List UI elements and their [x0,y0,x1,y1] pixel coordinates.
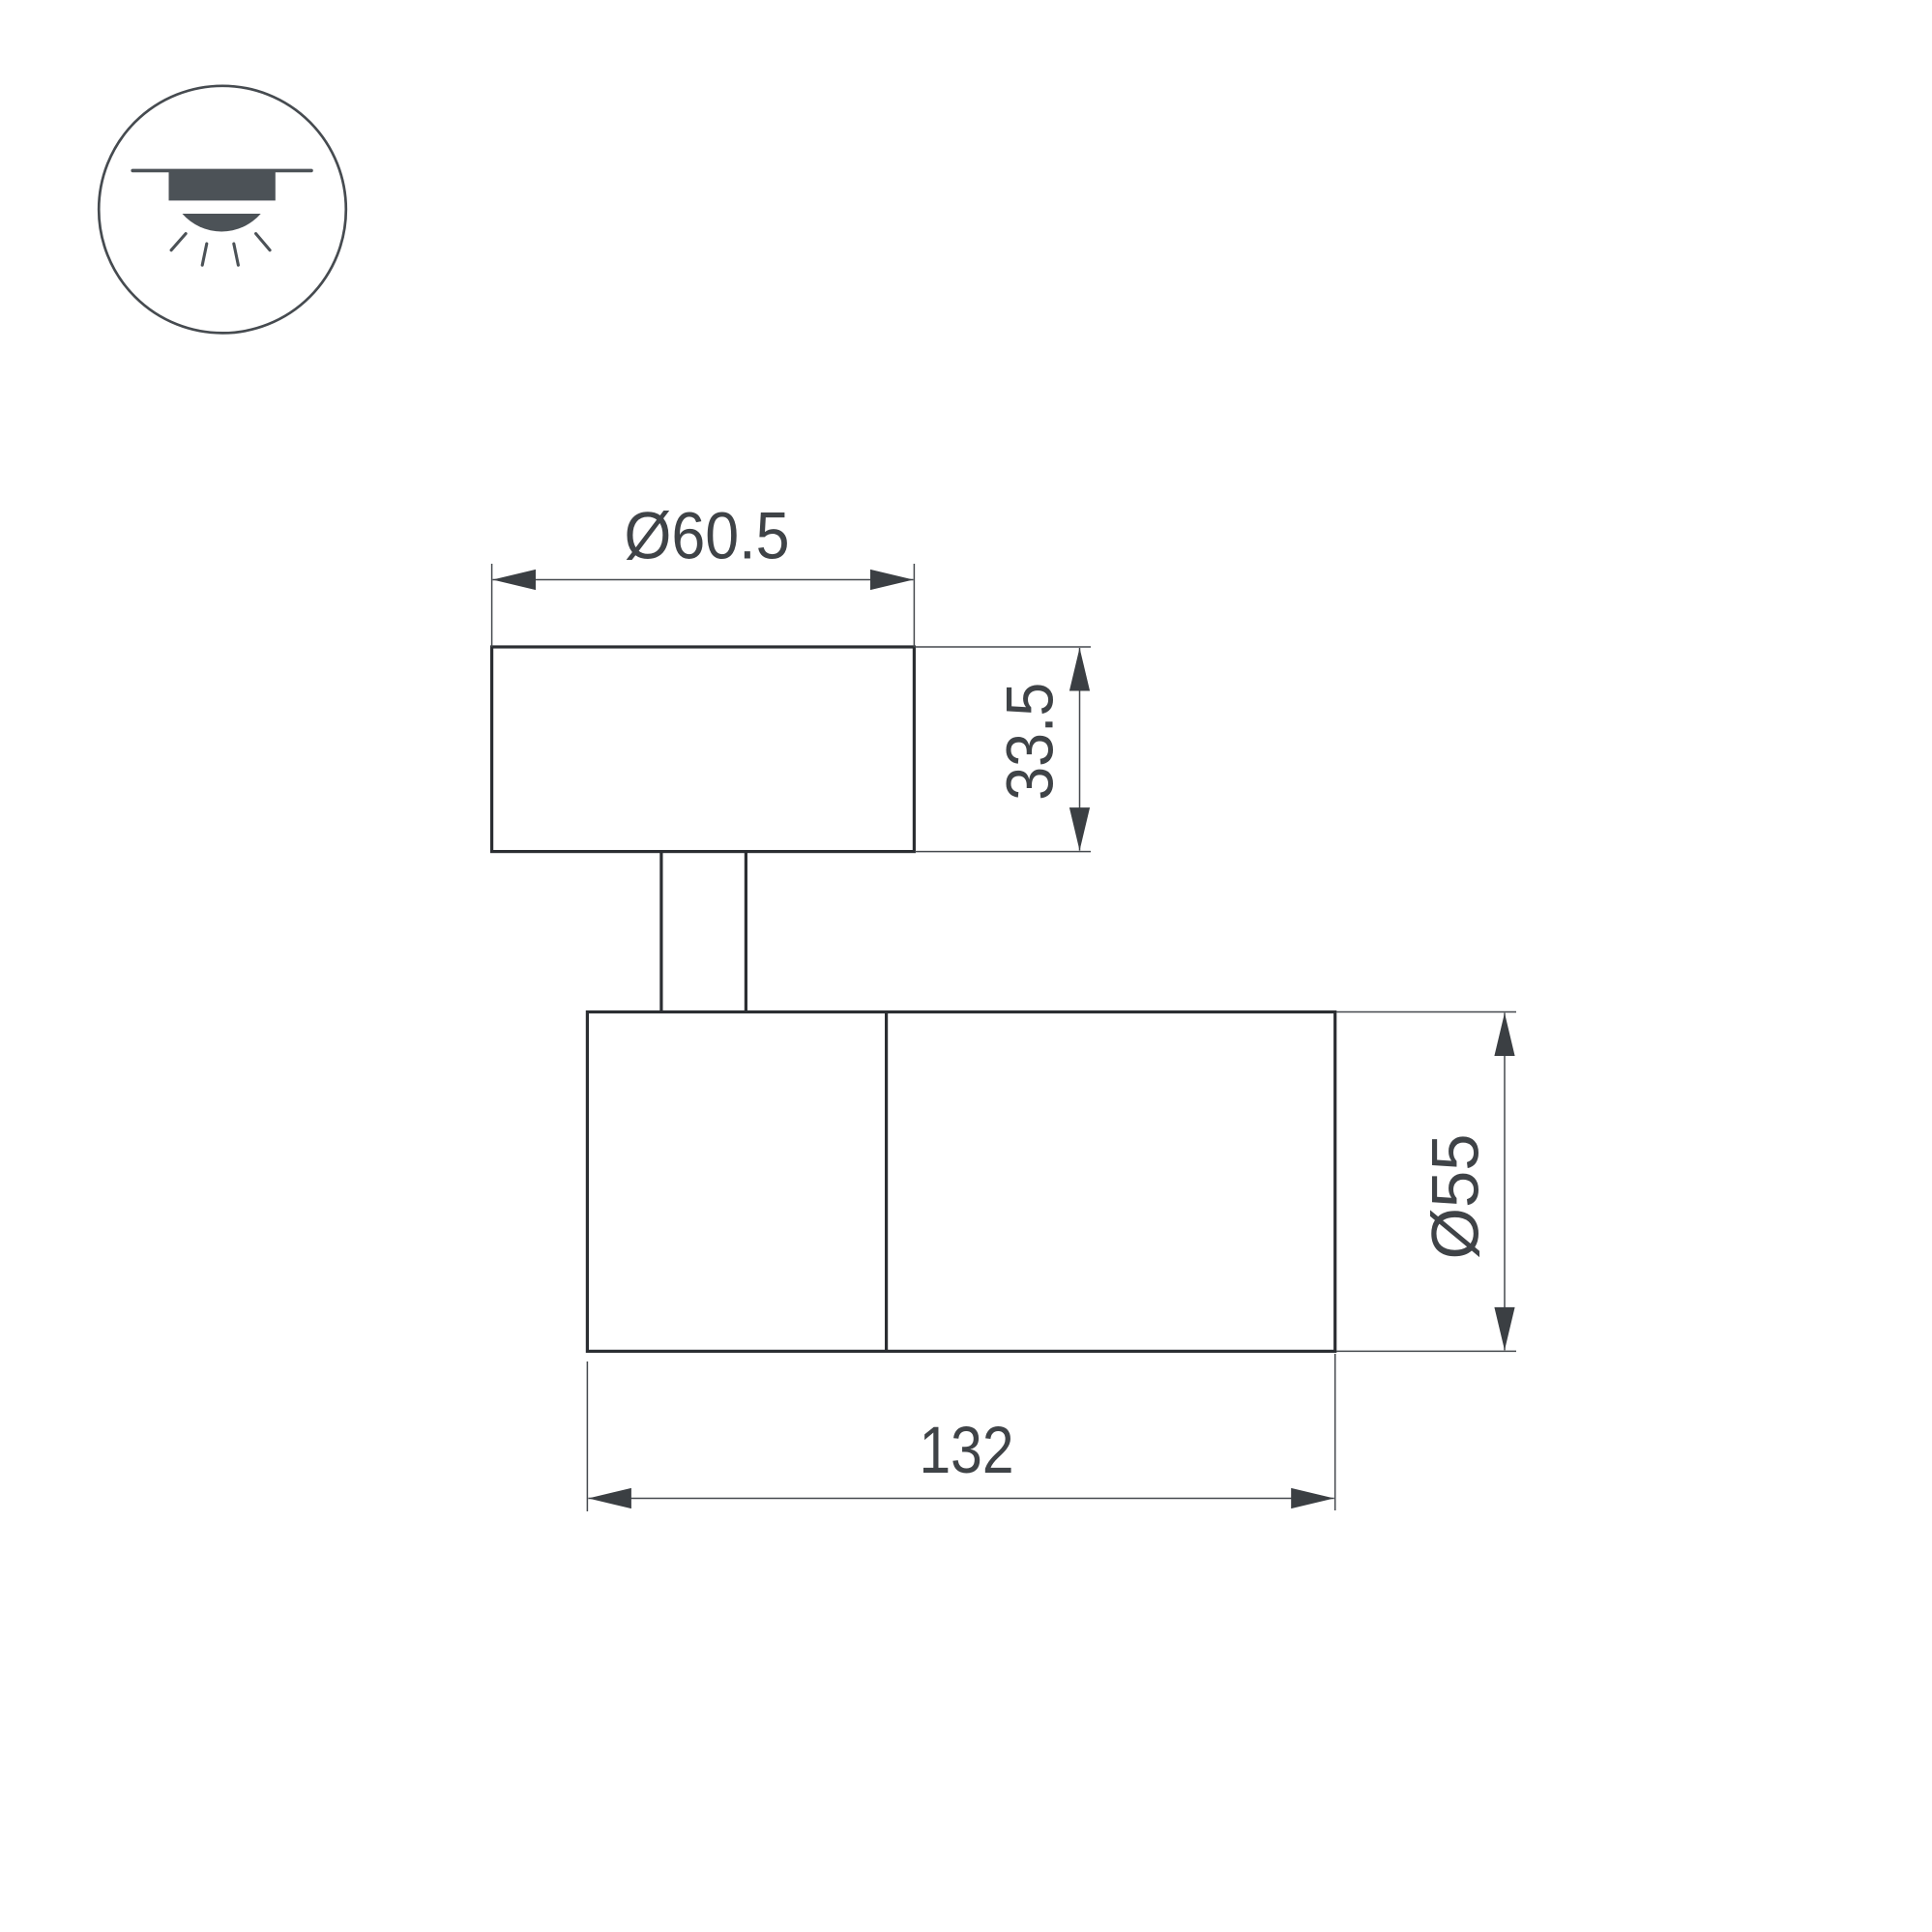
svg-text:Ø60.5: Ø60.5 [625,499,790,573]
svg-text:132: 132 [920,1413,1014,1487]
svg-text:Ø55: Ø55 [1419,1134,1493,1260]
svg-text:33.5: 33.5 [992,683,1067,801]
